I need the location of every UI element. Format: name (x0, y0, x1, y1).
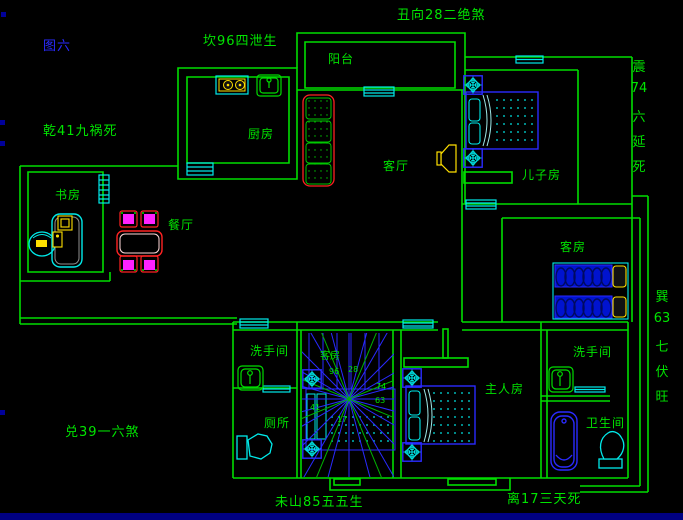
cad-floorplan-canvas[interactable]: 图六 坎96四泄生 丑向28二绝煞 乾41九祸死 兑39一六煞 未山85五五生 … (0, 0, 683, 520)
label-washroom-left: 洗手间 (250, 345, 289, 358)
nightstand-compass (303, 370, 321, 388)
label-guest-room: 客房 (560, 241, 586, 254)
annotation-east-vertical: 震 74 六 延 死 (630, 56, 648, 181)
annotation-southeast-vertical: 巽 63 七 伏 旺 (653, 286, 671, 411)
washroom-left-window (240, 319, 268, 328)
dining-chairs (120, 211, 158, 272)
sons-bed (466, 92, 538, 149)
tv (437, 145, 456, 172)
keyboard (36, 240, 47, 247)
guest-beds (553, 263, 628, 319)
toilet-right (599, 432, 624, 468)
compass-number-n: 96 (329, 368, 339, 377)
label-sons-room: 儿子房 (522, 169, 561, 182)
annotation-mountain: 未山85五五生 (275, 496, 364, 510)
label-living-room: 客厅 (383, 160, 409, 173)
kitchen-window (187, 163, 213, 175)
annotation-west: 兑39一六煞 (65, 426, 140, 440)
sink-left (238, 366, 263, 390)
edge-marks (0, 12, 6, 415)
washroom-right-counter (575, 387, 605, 392)
label-bathroom: 卫生间 (586, 417, 625, 430)
pillow (613, 297, 626, 317)
annotation-facing: 丑向28二绝煞 (397, 9, 486, 23)
toilet-left (237, 434, 272, 459)
annotation-northwest: 乾41九祸死 (43, 125, 118, 139)
label-study: 书房 (55, 189, 81, 202)
compass-number-w: 41 (310, 404, 320, 413)
sofa (303, 95, 334, 186)
label-toilet: 厕所 (264, 417, 290, 430)
sink-right (549, 367, 573, 392)
compass-number-s: 17 (337, 416, 347, 425)
figure-label: 图六 (43, 40, 71, 54)
compass-number-e: 74 (376, 383, 386, 392)
bathtub (551, 412, 577, 470)
sons-shelf (464, 172, 512, 183)
label-washroom-right: 洗手间 (573, 346, 612, 359)
annotation-north: 坎96四泄生 (203, 35, 278, 49)
study-window (99, 175, 109, 203)
compass-number-se: 63 (375, 397, 385, 406)
master-door-leaf (443, 329, 448, 358)
annotation-south: 离17三天死 (507, 493, 582, 507)
master-shelf (404, 358, 468, 367)
nightstand-compass (403, 369, 421, 387)
washroom-left-counter (263, 386, 290, 392)
compass-number-ne: 28 (348, 366, 358, 375)
nightstand-compass (464, 149, 482, 167)
nightstand-compass (403, 443, 421, 461)
pillow (613, 266, 626, 287)
label-master-room: 主人房 (485, 383, 524, 396)
study-desk (29, 214, 82, 267)
status-strip (0, 513, 683, 520)
label-middle-room: 客房 (320, 351, 340, 362)
floorplan-drawing (0, 0, 683, 520)
master-bed (406, 386, 475, 444)
kitchen-stove (216, 76, 248, 94)
label-kitchen: 厨房 (248, 128, 274, 141)
label-dining-room: 餐厅 (168, 219, 194, 232)
label-balcony: 阳台 (328, 53, 354, 66)
dining-set (117, 211, 162, 272)
kitchen-sink (257, 75, 281, 96)
